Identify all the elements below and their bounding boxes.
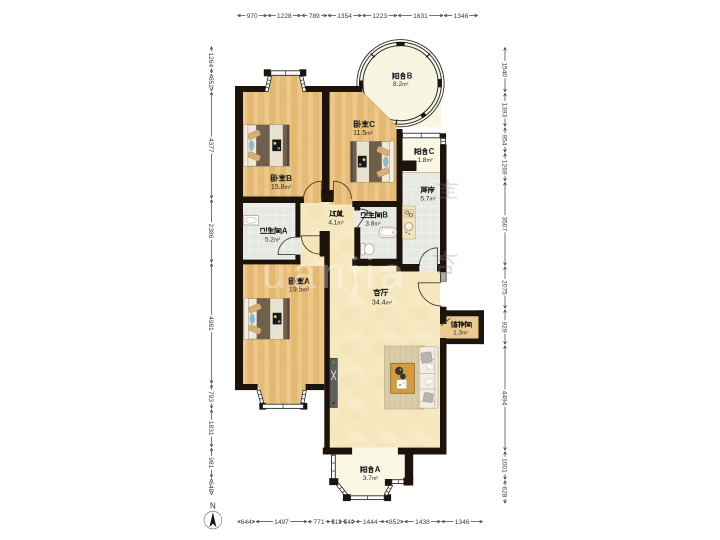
svg-text:15.8m²: 15.8m² [271,184,291,191]
svg-text:3.8m²: 3.8m² [365,220,381,227]
svg-text:C: C [429,147,435,156]
svg-text:uanjia: uanjia [262,249,409,298]
svg-text:1631: 1631 [413,13,428,20]
svg-text:1540: 1540 [501,62,508,77]
svg-text:513: 513 [331,520,342,526]
svg-text:1264: 1264 [207,52,214,67]
svg-text:1497: 1497 [274,519,289,526]
svg-text:1.8m²: 1.8m² [417,157,433,164]
svg-text:C: C [369,120,375,129]
svg-text:1444: 1444 [363,519,378,526]
svg-text:771: 771 [313,519,324,526]
svg-text:11.5m²: 11.5m² [353,130,373,137]
svg-text:8.2m²: 8.2m² [393,81,409,88]
svg-text:1228: 1228 [277,13,292,20]
svg-text:793: 793 [207,391,214,402]
svg-text:A: A [282,226,288,235]
svg-text:2075: 2075 [501,280,508,295]
svg-text:644: 644 [241,519,252,526]
svg-text:34.4m²: 34.4m² [372,300,392,307]
svg-text:5.7m²: 5.7m² [420,195,436,202]
svg-text:929: 929 [501,321,508,332]
svg-text:1438: 1438 [415,519,430,526]
svg-text:1.3m²: 1.3m² [453,329,468,336]
svg-text:B: B [407,72,413,81]
svg-text:970: 970 [247,13,258,20]
svg-text:852: 852 [389,519,400,526]
svg-text:1354: 1354 [337,13,352,20]
svg-text:4494: 4494 [501,391,508,406]
svg-text:540: 540 [344,520,355,526]
svg-text:3.7m²: 3.7m² [363,475,379,482]
svg-text:648: 648 [207,481,214,492]
svg-text:1346: 1346 [454,13,469,20]
svg-text:628: 628 [501,486,508,497]
svg-text:A: A [375,465,381,474]
svg-text:B: B [382,211,388,220]
svg-text:1831: 1831 [207,421,214,436]
svg-text:B: B [286,174,292,183]
svg-text:789: 789 [309,13,320,20]
svg-text:1346: 1346 [455,519,470,526]
svg-text:5.2m²: 5.2m² [265,236,281,243]
svg-text:3507: 3507 [501,216,508,231]
svg-text:1223: 1223 [372,13,387,20]
svg-text:4.1m²: 4.1m² [328,219,344,226]
svg-text:954: 954 [501,134,508,145]
svg-text:1393: 1393 [501,102,508,117]
svg-text:4981: 4981 [207,316,214,331]
svg-text:652: 652 [207,77,214,88]
svg-text:4377: 4377 [207,138,214,153]
svg-text:981: 981 [207,457,214,468]
svg-text:2386: 2386 [207,224,214,239]
svg-text:1001: 1001 [501,458,508,473]
svg-text:N: N [210,502,216,511]
svg-text:1269: 1269 [501,160,508,175]
